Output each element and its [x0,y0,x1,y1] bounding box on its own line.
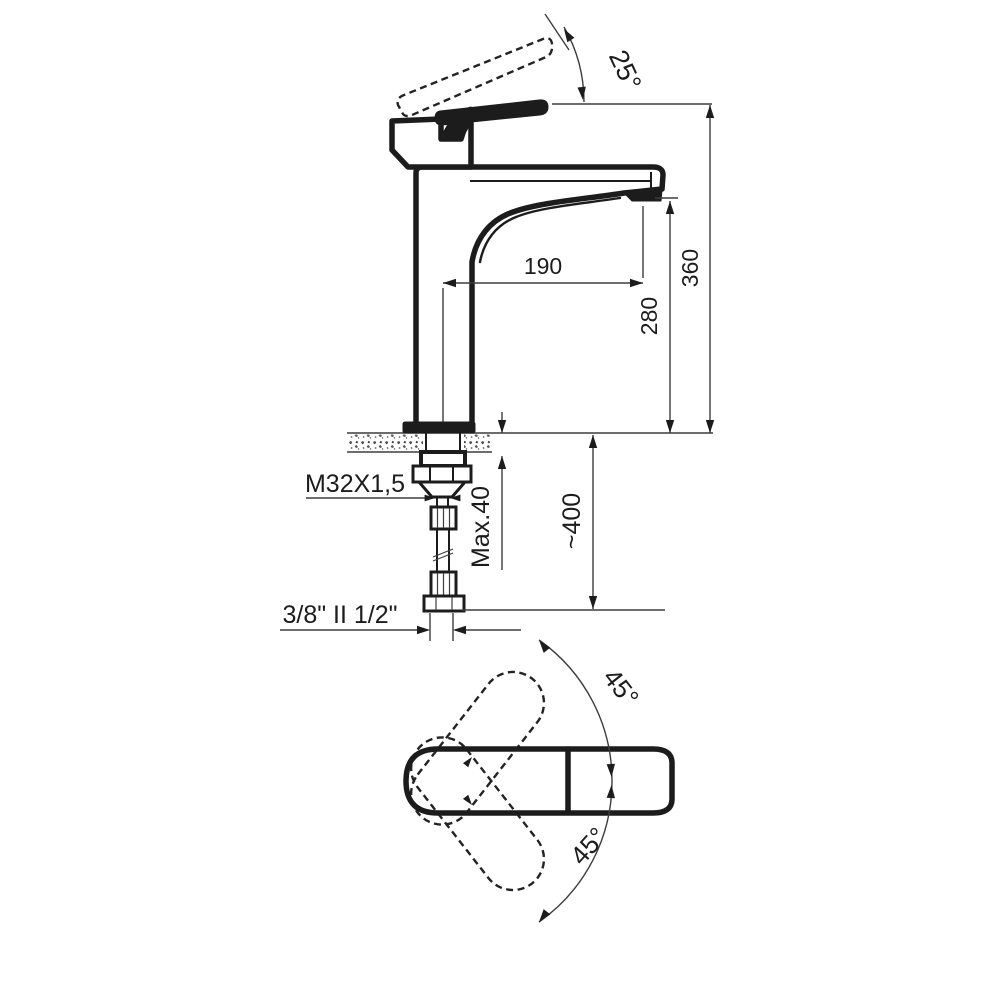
faucet-top-view: 45° 45° [399,637,672,924]
gasket-washer [421,452,465,466]
flexible-hose [424,497,464,611]
mounting-nut [413,466,471,482]
dim-swivel-upper-label: 45° [597,663,645,712]
dim-lever-angle-label: 25° [603,45,647,95]
handle-plan-outline [406,749,672,813]
dim-spout-height-label: 280 [636,297,662,335]
deck-shank [426,433,460,452]
deck-hatch-left [349,435,423,451]
base-flange [403,422,475,433]
lever-handle [435,100,548,125]
swivel-arrow-up [463,755,475,767]
threaded-collar [419,482,465,497]
dimension-total-height: 360 [677,105,714,433]
dimension-swivel-lower: 45° [536,781,616,925]
dim-max-deck-label: Max.40 [467,486,495,568]
faucet-body-outline [416,167,663,430]
technical-drawing-canvas: 25° 190 280 360 [0,0,1000,1000]
countertop [347,433,713,452]
dim-hose-length-label: ~400 [558,493,586,549]
callout-connection: 3/8" II 1/2" [280,601,521,641]
hose-tube [437,529,449,572]
deck-hatch-right [464,435,490,451]
dim-total-height-label: 360 [677,249,703,287]
thread-label: M32X1,5 [305,470,405,498]
dimension-lever-angle: 25° [545,14,712,104]
hose-end-nut [424,596,464,611]
dimension-swivel-upper: 45° [536,637,645,781]
dim-spout-reach-label: 190 [524,253,562,279]
connection-label: 3/8" II 1/2" [282,601,397,629]
faucet-side-view: 25° 190 280 360 [280,14,714,641]
faucet-dimension-drawing: 25° 190 280 360 [0,0,1000,1000]
mounting-hardware [413,452,471,497]
